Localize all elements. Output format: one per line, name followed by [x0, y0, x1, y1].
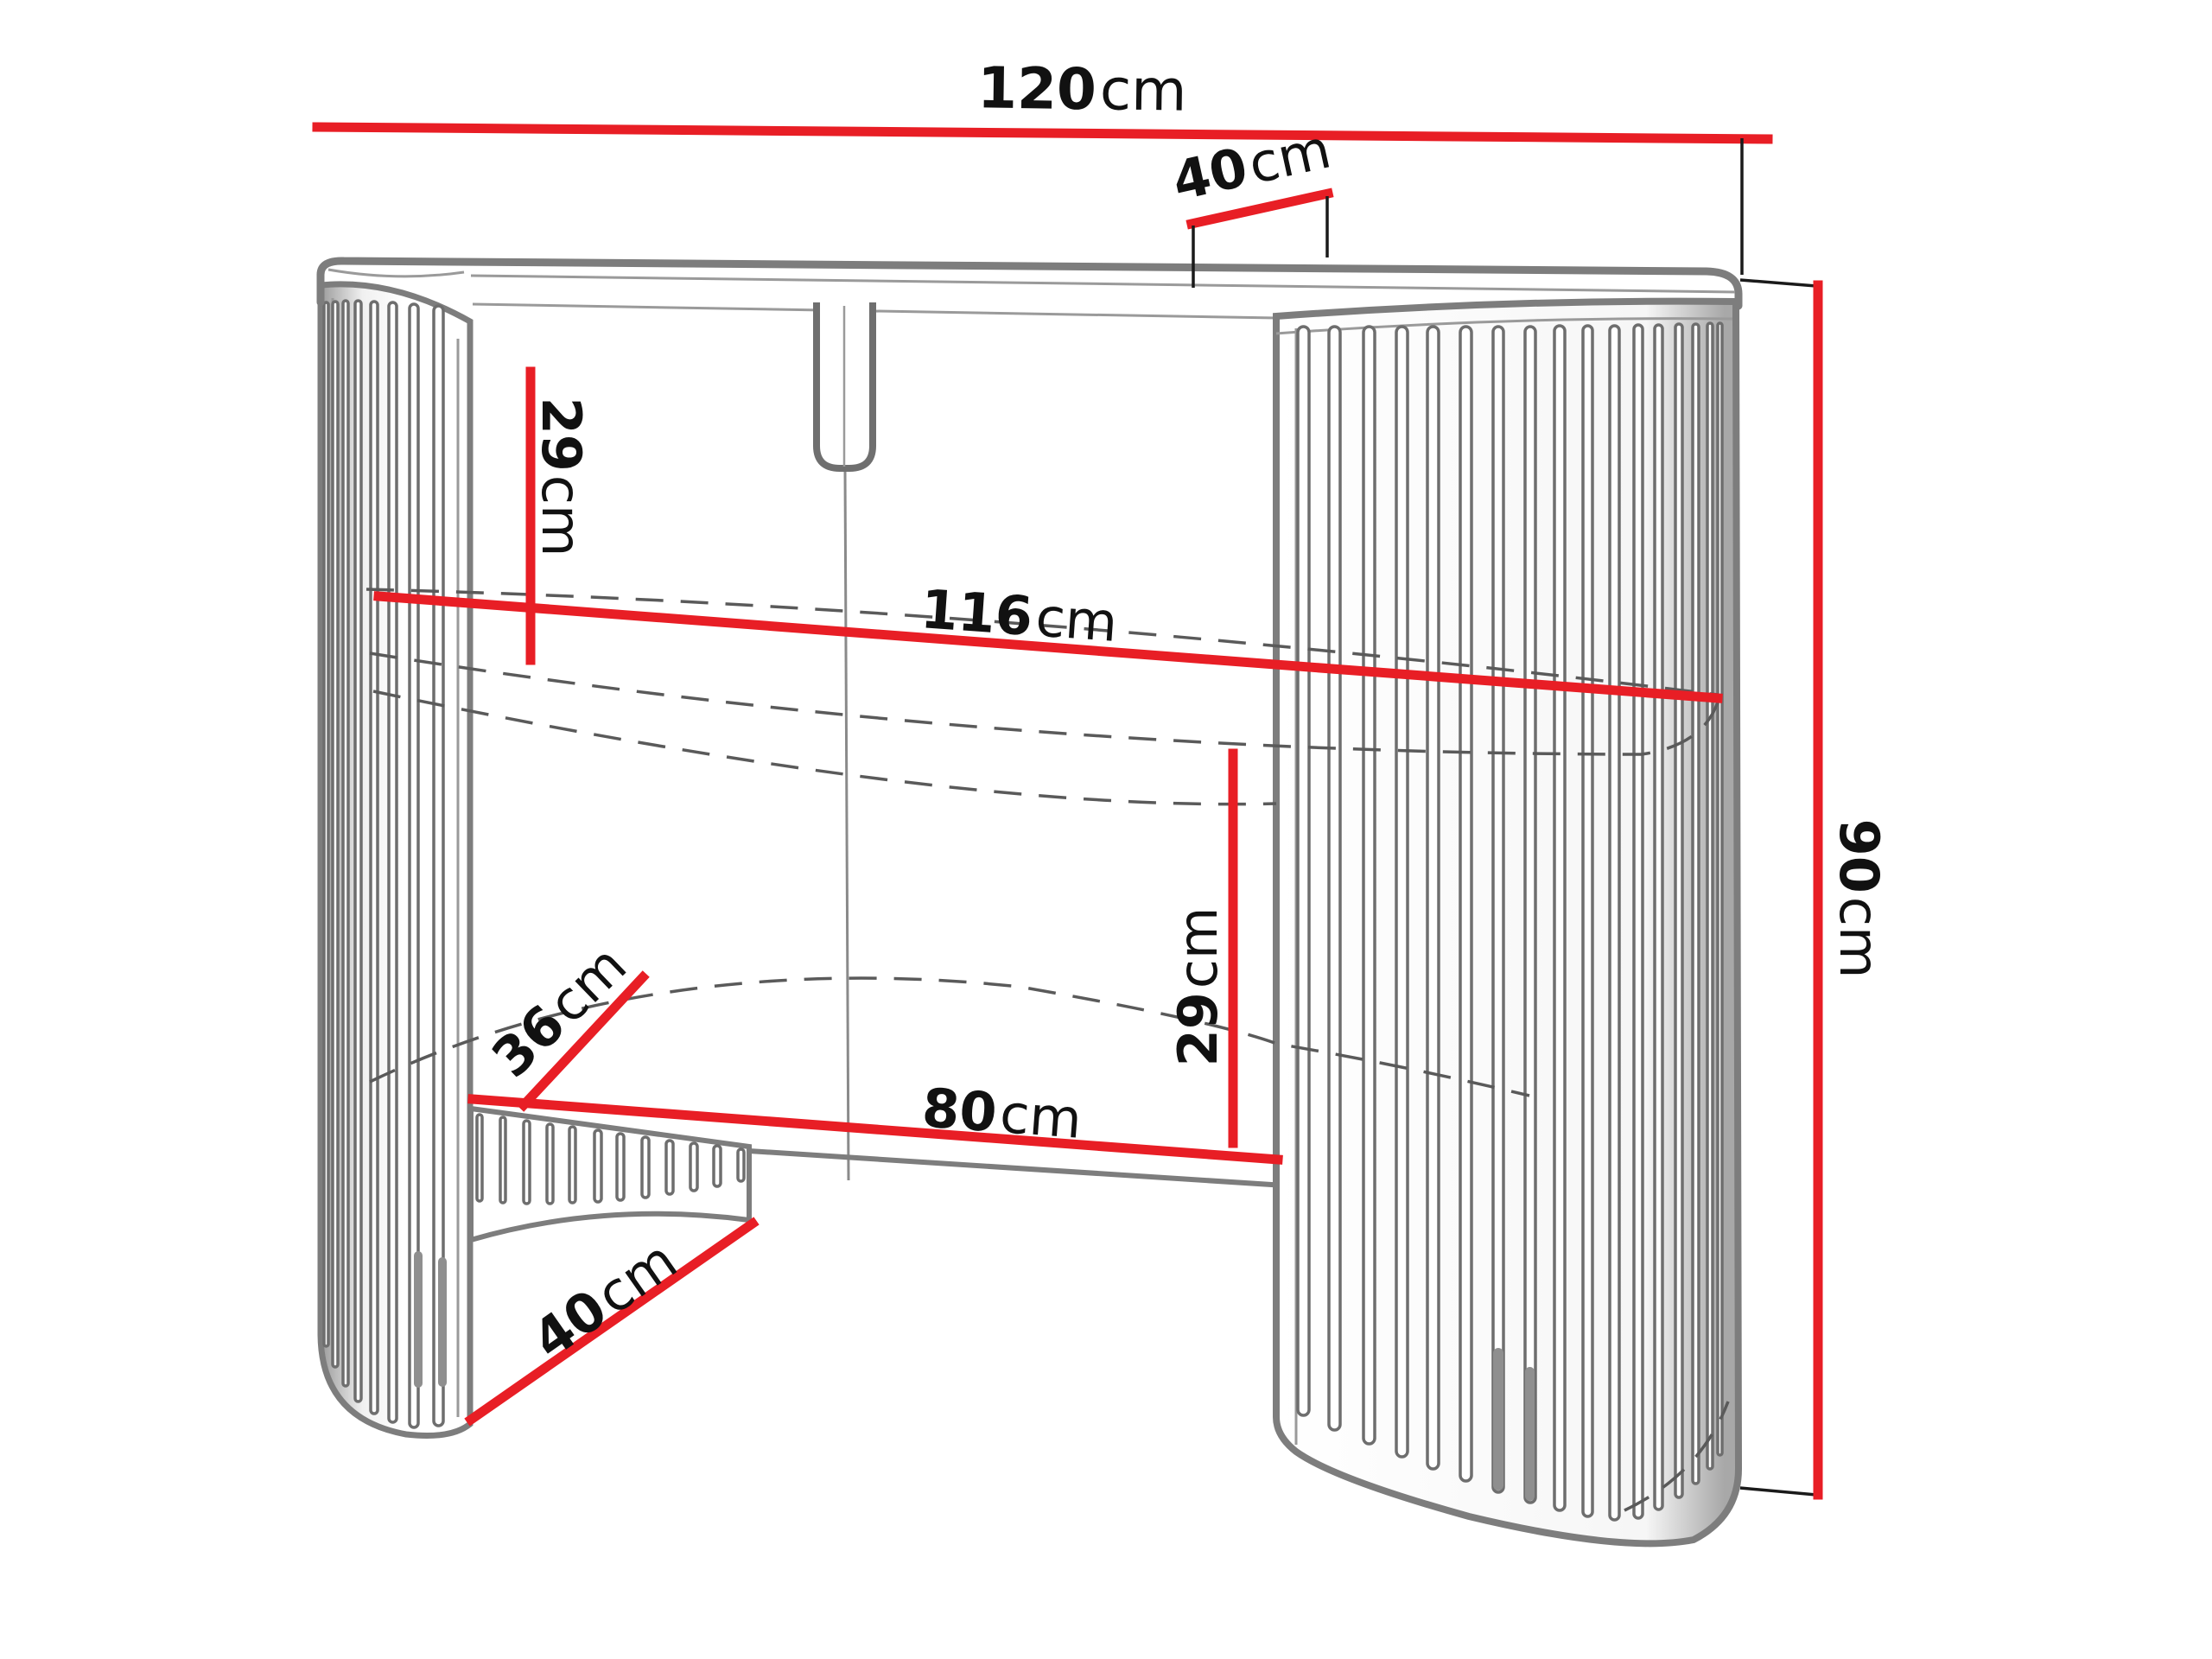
- dim-label-base-width: 80cm: [920, 1076, 1084, 1151]
- dim-label-top-width: 120cm: [977, 54, 1187, 124]
- base-foot-outline: [471, 1109, 749, 1240]
- dim-label-lower-clearance: 29cm: [1166, 907, 1230, 1067]
- furniture-dimension-diagram: 120cm 40cm 29cm 116cm: [0, 0, 2212, 1659]
- right-panel-outline: [1276, 302, 1738, 1544]
- tabletop-underside: [471, 276, 1735, 292]
- dim-label-overall-height: 90cm: [1827, 819, 1891, 979]
- tabletop: [321, 261, 1738, 306]
- right-panel: [1276, 302, 1738, 1544]
- dim-label-base-depth: 40cm: [521, 1229, 688, 1372]
- dimension-shelf-depth: 36cm: [480, 933, 643, 1105]
- dimension-base-depth: 40cm: [471, 1224, 753, 1420]
- mid-shelf-thickness-edge: [373, 691, 1276, 804]
- tabletop-left-cap: [328, 270, 464, 276]
- dim-label-upper-clearance: 29cm: [530, 397, 593, 557]
- base-foot: [471, 1109, 749, 1240]
- diagram-canvas: 120cm 40cm 29cm 116cm: [0, 0, 2212, 1659]
- dimension-upper-clearance: 29cm: [530, 372, 593, 660]
- left-panel: [321, 284, 470, 1436]
- door-panels: [473, 302, 1285, 1185]
- door-center-seam: [845, 470, 849, 1180]
- dimension-lower-clearance: 29cm: [1166, 753, 1233, 1143]
- dimension-top-depth: 40cm: [1166, 117, 1336, 288]
- dimension-overall-height: 90cm: [1740, 280, 1891, 1495]
- dimension-top-width: 120cm: [317, 54, 1768, 275]
